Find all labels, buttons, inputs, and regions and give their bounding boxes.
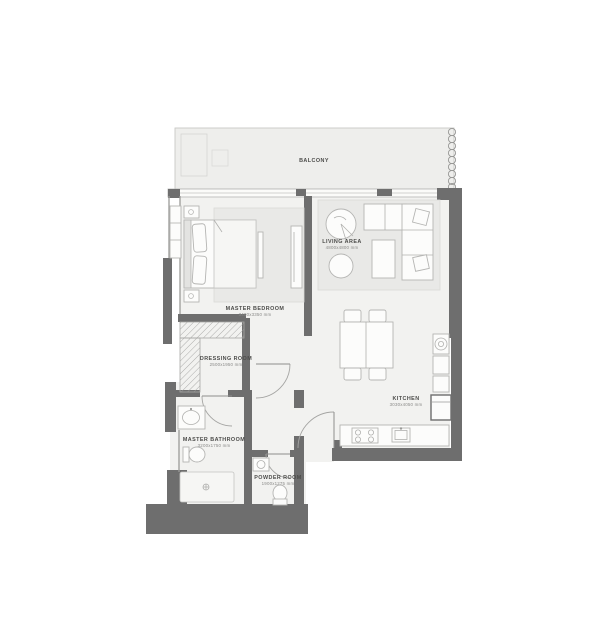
wall-mullion-left xyxy=(168,189,180,198)
floor-plan-page: MASTER BEDROOM 3400x3350 mm DRESSING ROO… xyxy=(0,0,608,640)
closet-left-icon xyxy=(180,338,200,392)
living-area-dims: 4800x4800 mm xyxy=(326,245,359,250)
wall-left-lower xyxy=(165,382,176,432)
pouf-icon xyxy=(329,254,353,278)
wall-kitchen-bottom xyxy=(332,448,462,461)
wall-left-upper xyxy=(163,258,172,344)
dining-chair-icon xyxy=(344,310,361,322)
bed-icon xyxy=(184,220,263,288)
fridge-icon xyxy=(431,395,451,420)
powder-room-dims: 1900x1275 mm xyxy=(262,481,295,486)
dining-chair-icon xyxy=(369,368,386,380)
shower-icon xyxy=(180,472,234,502)
kitchen-sink-icon xyxy=(392,427,410,442)
living-area-room: LIVING AREA 4800x4800 mm xyxy=(318,200,440,290)
entry-floor xyxy=(306,448,334,462)
bed-bench-icon xyxy=(258,232,263,278)
wall-bedroom-living-divider xyxy=(304,196,312,336)
floor-plan-drawing: MASTER BEDROOM 3400x3350 mm DRESSING ROO… xyxy=(0,0,608,640)
master-bedroom-dims: 3400x3350 mm xyxy=(239,312,272,317)
wall-bath-powder-divider xyxy=(244,390,252,504)
closet-top-icon xyxy=(180,322,244,338)
wall-mullion-mid2 xyxy=(377,189,392,196)
tall-units-icon xyxy=(431,334,451,420)
powder-toilet-icon xyxy=(273,485,287,505)
wall-mullion-mid1 xyxy=(296,189,306,196)
tv-cabinet-icon xyxy=(291,226,302,288)
wall-bedroom-bottom xyxy=(178,314,246,322)
dining-chair-icon xyxy=(369,310,386,322)
pillow-icon xyxy=(413,255,430,272)
dining-chair-icon xyxy=(344,368,361,380)
kitchen-dims: 3030x4050 mm xyxy=(390,402,423,407)
bathroom-vanity-icon xyxy=(178,406,205,429)
wall-right-lower xyxy=(451,338,462,460)
kitchen-counter-icon xyxy=(340,425,449,446)
powder-vanity-icon xyxy=(253,458,269,471)
master-bedroom-room: MASTER BEDROOM 3400x3350 mm xyxy=(170,206,304,317)
dressing-room-dims: 2500x1950 mm xyxy=(210,362,243,367)
master-bathroom-dims: 3200x1750 mm xyxy=(198,443,231,448)
dining-table-icon xyxy=(340,322,393,368)
wall-mullion-right xyxy=(437,188,451,200)
wall-powder-top xyxy=(252,450,268,457)
wall-powder-right-upper xyxy=(294,390,304,408)
wall-right-upper xyxy=(449,188,462,338)
wall-bottom-slab xyxy=(146,504,308,534)
balcony-label: BALCONY xyxy=(299,158,329,164)
nightstand-top-icon xyxy=(184,206,199,218)
wardrobe-icon xyxy=(170,206,181,258)
window-band xyxy=(168,189,450,197)
pillow-icon xyxy=(413,209,430,226)
bathroom-toilet-icon xyxy=(183,447,205,462)
hob-icon xyxy=(352,428,378,443)
wall-powder-right-lower xyxy=(294,436,304,504)
coffee-table-icon xyxy=(372,240,395,278)
nightstand-bottom-icon xyxy=(184,290,199,302)
